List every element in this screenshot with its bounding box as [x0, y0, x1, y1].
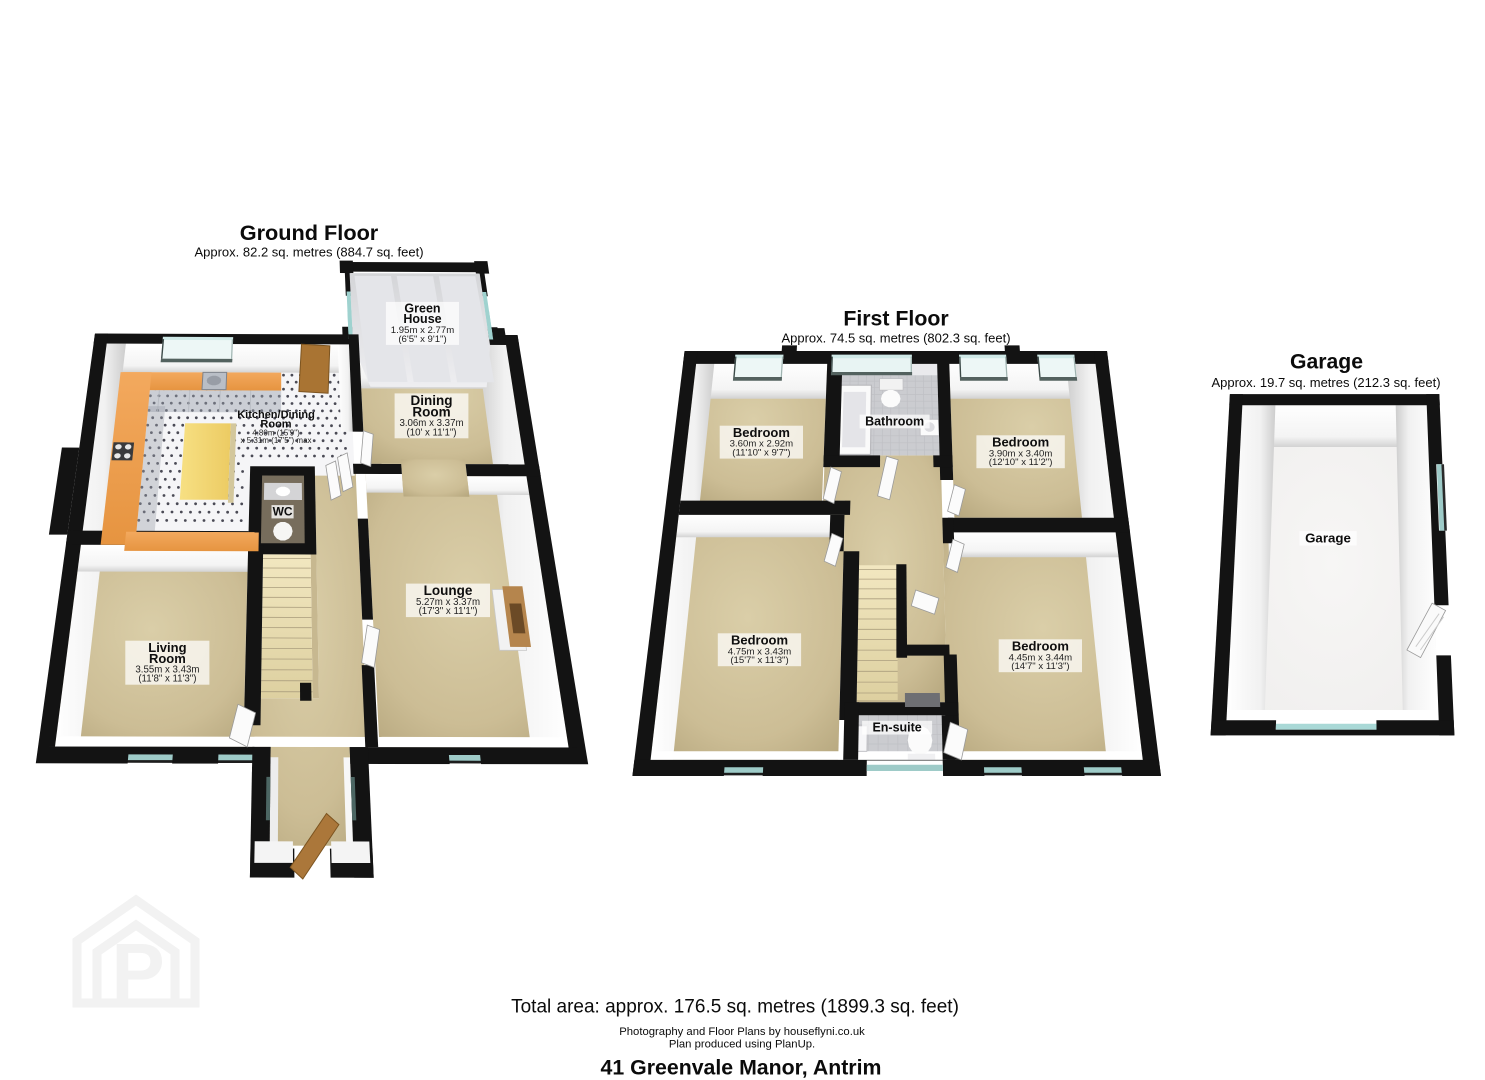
- svg-text:Approx. 19.7 sq. metres (212.3: Approx. 19.7 sq. metres (212.3 sq. feet): [1211, 375, 1440, 390]
- svg-text:P: P: [111, 927, 164, 1016]
- svg-text:WC: WC: [273, 504, 293, 518]
- svg-text:Photography and Floor Plans by: Photography and Floor Plans by houseflyn…: [619, 1026, 865, 1038]
- svg-text:(11'10" x 9'7"): (11'10" x 9'7"): [732, 448, 790, 459]
- svg-text:Garage: Garage: [1290, 351, 1363, 374]
- svg-text:(10' x 11'1"): (10' x 11'1"): [406, 427, 456, 438]
- svg-text:Room: Room: [149, 651, 186, 666]
- svg-text:Ground Floor: Ground Floor: [240, 220, 379, 245]
- svg-text:Room: Room: [412, 404, 450, 419]
- svg-text:Total area: approx. 176.5 sq.: Total area: approx. 176.5 sq. metres (18…: [511, 997, 959, 1018]
- svg-text:(12'10" x 11'2"): (12'10" x 11'2"): [989, 457, 1053, 468]
- svg-text:x 5.31m (17'5") max: x 5.31m (17'5") max: [240, 436, 311, 445]
- svg-text:Bedroom: Bedroom: [992, 435, 1049, 450]
- svg-text:(6'5" x 9'1"): (6'5" x 9'1"): [398, 334, 446, 345]
- svg-text:First Floor: First Floor: [843, 307, 948, 331]
- svg-text:(15'7" x 11'3"): (15'7" x 11'3"): [730, 655, 788, 666]
- svg-text:Bedroom: Bedroom: [1012, 639, 1069, 654]
- svg-text:Lounge: Lounge: [424, 583, 473, 598]
- svg-text:(11'8" x 11'3"): (11'8" x 11'3"): [138, 674, 196, 685]
- svg-text:41 Greenvale Manor, Antrim: 41 Greenvale Manor, Antrim: [601, 1056, 882, 1080]
- svg-text:(14'7" x 11'3"): (14'7" x 11'3"): [1011, 661, 1069, 672]
- svg-text:(17'3" x 11'1"): (17'3" x 11'1"): [419, 606, 478, 617]
- svg-text:Bedroom: Bedroom: [731, 633, 788, 648]
- svg-text:Bathroom: Bathroom: [865, 414, 924, 428]
- svg-text:Garage: Garage: [1305, 531, 1351, 546]
- svg-text:Approx. 82.2 sq. metres (884.7: Approx. 82.2 sq. metres (884.7 sq. feet): [194, 245, 423, 260]
- svg-text:Approx. 74.5 sq. metres (802.3: Approx. 74.5 sq. metres (802.3 sq. feet): [781, 331, 1010, 346]
- svg-text:En-suite: En-suite: [872, 721, 921, 735]
- svg-text:Plan produced using PlanUp.: Plan produced using PlanUp.: [669, 1039, 815, 1051]
- svg-text:Bedroom: Bedroom: [733, 425, 790, 440]
